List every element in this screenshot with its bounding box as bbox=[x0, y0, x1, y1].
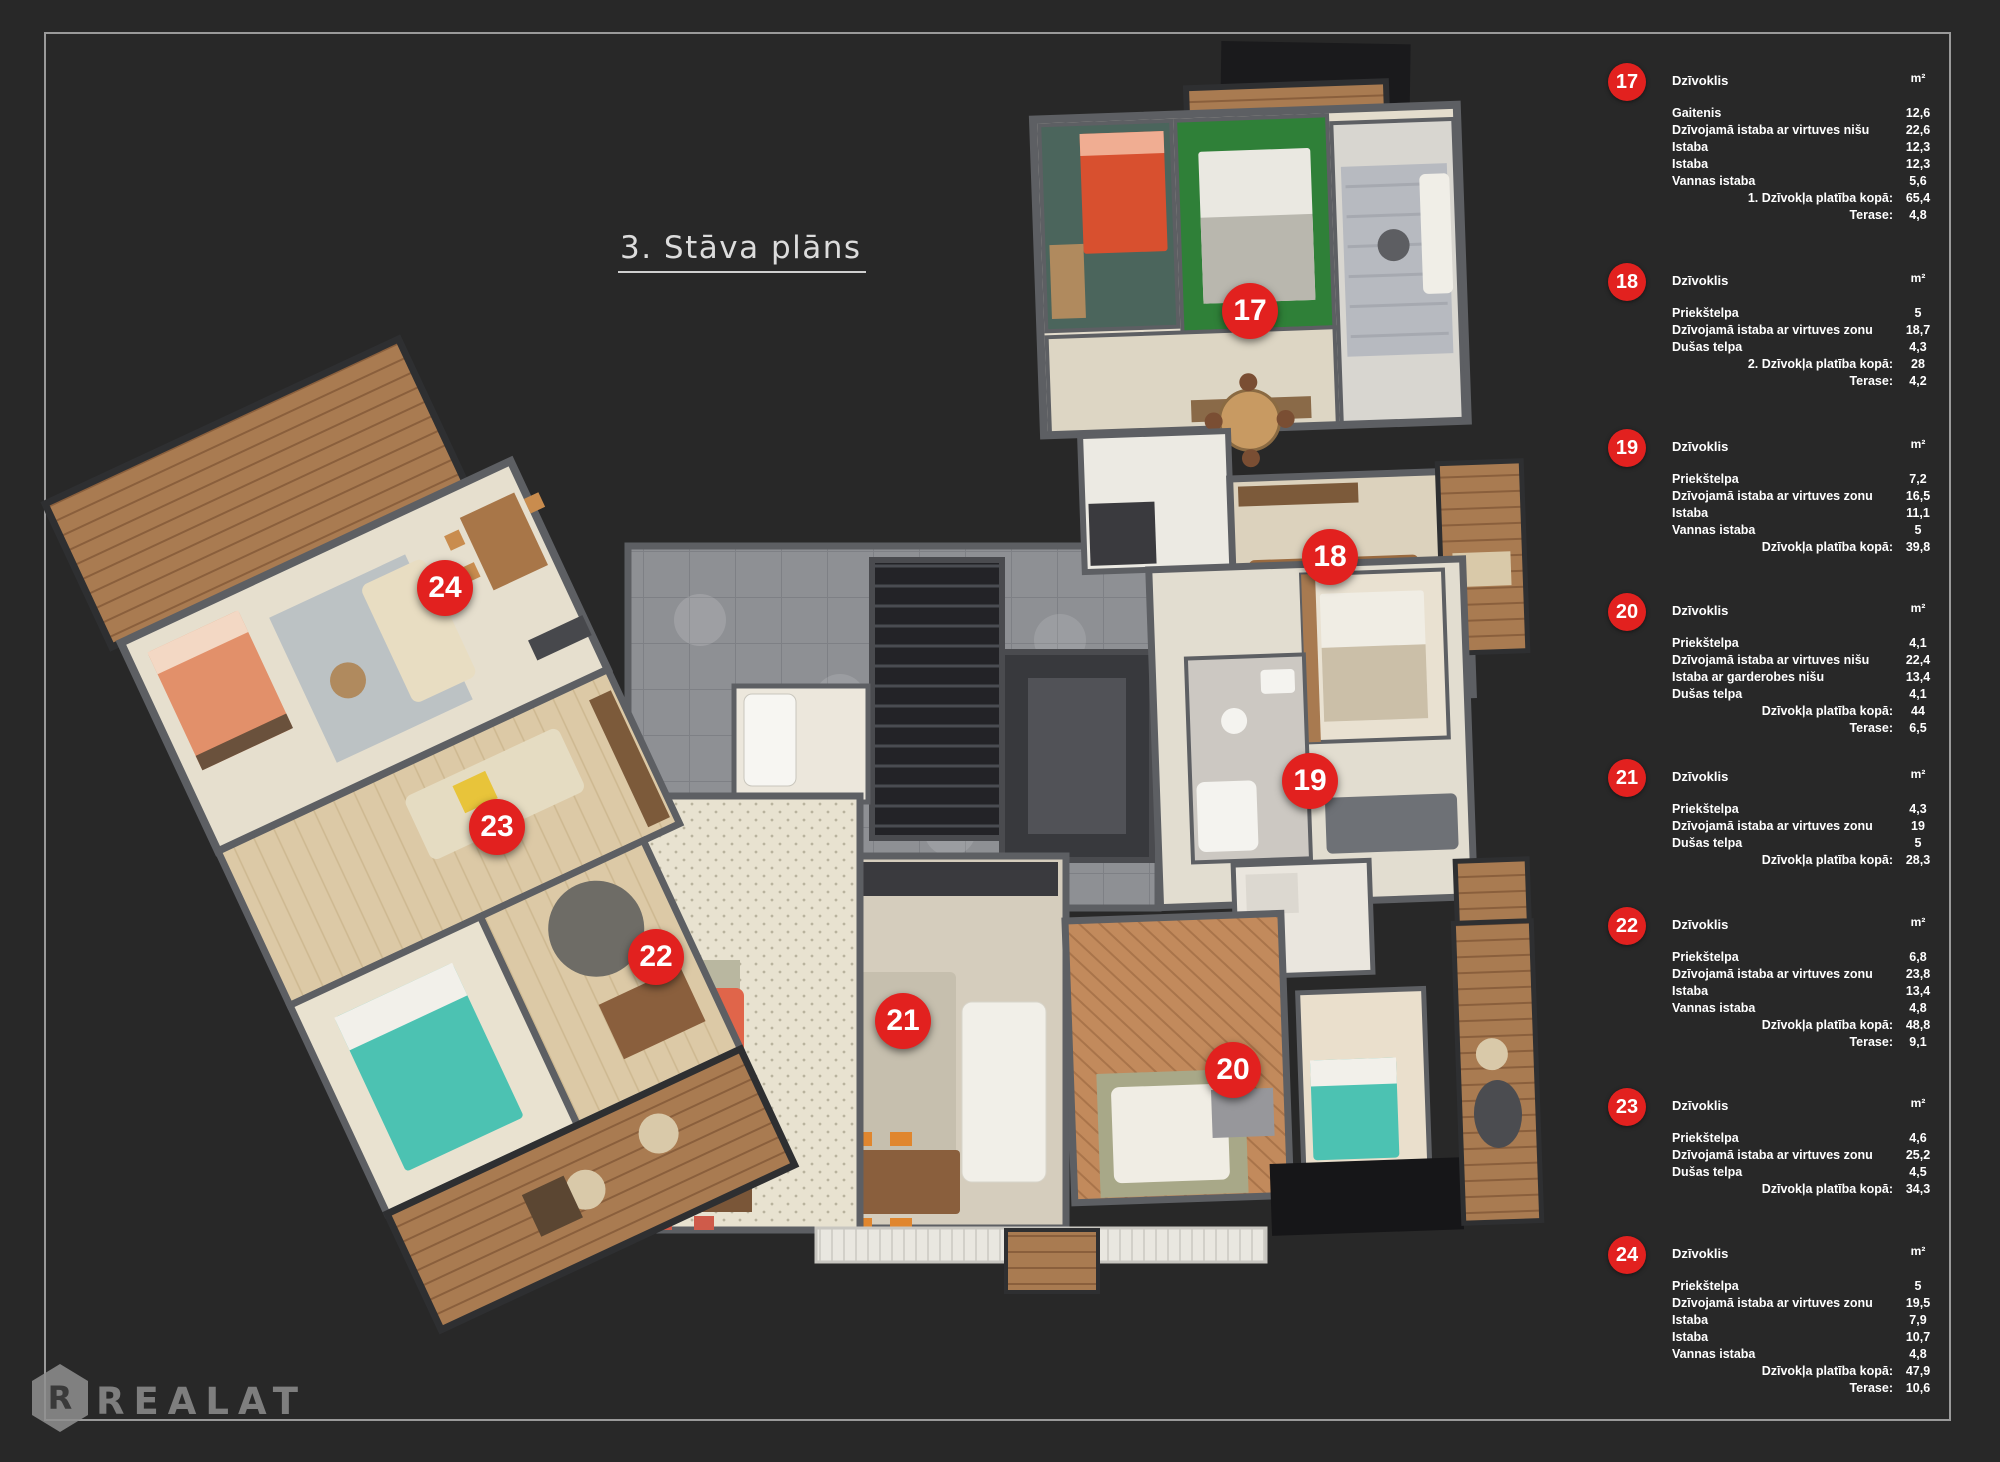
legend-total-row: Terase:4,2 bbox=[1672, 373, 1941, 390]
legend-header-label: Dzīvoklis bbox=[1672, 603, 1728, 618]
legend-header: 23Dzīvoklism² bbox=[1608, 1088, 1941, 1126]
legend-room-row: Istaba7,9 bbox=[1672, 1312, 1941, 1329]
legend-apartment-17: 17Dzīvoklism²Gaitenis12,6Dzīvojamā istab… bbox=[1608, 63, 1941, 224]
apartment-marker-18: 18 bbox=[1302, 529, 1358, 585]
apartment-number-badge: 19 bbox=[1608, 429, 1646, 467]
legend-room-row: Dušas telpa4,5 bbox=[1672, 1164, 1941, 1181]
legend-header-unit: m² bbox=[1895, 71, 1941, 85]
legend-apartment-18: 18Dzīvoklism²Priekštelpa5Dzīvojamā istab… bbox=[1608, 263, 1941, 390]
legend-room-row: Priekštelpa4,1 bbox=[1672, 635, 1941, 652]
apartment-number-badge: 17 bbox=[1608, 63, 1646, 101]
legend-room-row: Istaba11,1 bbox=[1672, 505, 1941, 522]
apartment-marker-24: 24 bbox=[417, 560, 473, 616]
apartment-number-badge: 20 bbox=[1608, 593, 1646, 631]
legend-total-row: Dzīvokļa platība kopā:44 bbox=[1672, 703, 1941, 720]
legend-room-row: Dzīvojamā istaba ar virtuves zonu19 bbox=[1672, 818, 1941, 835]
legend-header-unit: m² bbox=[1895, 1096, 1941, 1110]
logo-hexagon-icon: R bbox=[30, 1362, 90, 1434]
legend-header-label: Dzīvoklis bbox=[1672, 1246, 1728, 1261]
legend-total-row: Dzīvokļa platība kopā:28,3 bbox=[1672, 852, 1941, 869]
terrace-20 bbox=[1453, 921, 1541, 1224]
legend-room-row: Priekštelpa6,8 bbox=[1672, 949, 1941, 966]
legend-header: 20Dzīvoklism² bbox=[1608, 593, 1941, 631]
legend-room-row: Dzīvojamā istaba ar virtuves zonu25,2 bbox=[1672, 1147, 1941, 1164]
legend-room-row: Vannas istaba4,8 bbox=[1672, 1346, 1941, 1363]
legend-total-row: Terase:6,5 bbox=[1672, 720, 1941, 737]
apartment-marker-21: 21 bbox=[875, 993, 931, 1049]
legend-room-row: Vannas istaba5,6 bbox=[1672, 173, 1941, 190]
staircase bbox=[872, 560, 1002, 838]
legend-total-row: Terase:9,1 bbox=[1672, 1034, 1941, 1051]
legend-header-label: Dzīvoklis bbox=[1672, 769, 1728, 784]
apartment-marker-17: 17 bbox=[1222, 283, 1278, 339]
legend-header: 18Dzīvoklism² bbox=[1608, 263, 1941, 301]
legend-room-row: Dzīvojamā istaba ar virtuves zonu23,8 bbox=[1672, 966, 1941, 983]
legend-total-row: Dzīvokļa platība kopā:48,8 bbox=[1672, 1017, 1941, 1034]
apartment-number-badge: 21 bbox=[1608, 759, 1646, 797]
legend-apartment-21: 21Dzīvoklism²Priekštelpa4,3Dzīvojamā ist… bbox=[1608, 759, 1941, 869]
legend-room-row: Istaba12,3 bbox=[1672, 156, 1941, 173]
legend-total-row: 1. Dzīvokļa platība kopā:65,4 bbox=[1672, 190, 1941, 207]
legend-room-row: Gaitenis12,6 bbox=[1672, 105, 1941, 122]
legend-total-row: Dzīvokļa platība kopā:39,8 bbox=[1672, 539, 1941, 556]
apartment-marker-19: 19 bbox=[1282, 753, 1338, 809]
apartment-marker-20: 20 bbox=[1205, 1042, 1261, 1098]
legend-header: 24Dzīvoklism² bbox=[1608, 1236, 1941, 1274]
legend-room-row: Vannas istaba5 bbox=[1672, 522, 1941, 539]
apartment-legend: 17Dzīvoklism²Gaitenis12,6Dzīvojamā istab… bbox=[1608, 0, 1941, 1462]
legend-header-label: Dzīvoklis bbox=[1672, 73, 1728, 88]
legend-room-row: Istaba12,3 bbox=[1672, 139, 1941, 156]
legend-total-row: Dzīvokļa platība kopā:34,3 bbox=[1672, 1181, 1941, 1198]
apartment-number-badge: 24 bbox=[1608, 1236, 1646, 1274]
legend-header: 21Dzīvoklism² bbox=[1608, 759, 1941, 797]
legend-room-row: Istaba ar garderobes nišu13,4 bbox=[1672, 669, 1941, 686]
legend-room-row: Dzīvojamā istaba ar virtuves zonu16,5 bbox=[1672, 488, 1941, 505]
legend-header-unit: m² bbox=[1895, 437, 1941, 451]
legend-total-row: Terase:10,6 bbox=[1672, 1380, 1941, 1397]
legend-header-unit: m² bbox=[1895, 601, 1941, 615]
legend-header: 19Dzīvoklism² bbox=[1608, 429, 1941, 467]
legend-total-row: 2. Dzīvokļa platība kopā:28 bbox=[1672, 356, 1941, 373]
legend-room-row: Priekštelpa4,6 bbox=[1672, 1130, 1941, 1147]
legend-header-unit: m² bbox=[1895, 1244, 1941, 1258]
legend-room-row: Priekštelpa4,3 bbox=[1672, 801, 1941, 818]
legend-room-row: Istaba10,7 bbox=[1672, 1329, 1941, 1346]
legend-room-row: Vannas istaba4,8 bbox=[1672, 1000, 1941, 1017]
legend-apartment-20: 20Dzīvoklism²Priekštelpa4,1Dzīvojamā ist… bbox=[1608, 593, 1941, 737]
legend-total-row: Terase:4,8 bbox=[1672, 207, 1941, 224]
legend-apartment-24: 24Dzīvoklism²Priekštelpa5Dzīvojamā istab… bbox=[1608, 1236, 1941, 1397]
bottom-wood-terrace bbox=[1006, 1230, 1098, 1292]
apartment-number-badge: 23 bbox=[1608, 1088, 1646, 1126]
legend-apartment-23: 23Dzīvoklism²Priekštelpa4,6Dzīvojamā ist… bbox=[1608, 1088, 1941, 1198]
legend-header-label: Dzīvoklis bbox=[1672, 273, 1728, 288]
legend-apartment-22: 22Dzīvoklism²Priekštelpa6,8Dzīvojamā ist… bbox=[1608, 907, 1941, 1051]
legend-header-unit: m² bbox=[1895, 767, 1941, 781]
page: 1718192021222324 3. Stāva plāns 17Dzīvok… bbox=[0, 0, 2000, 1462]
legend-header-label: Dzīvoklis bbox=[1672, 917, 1728, 932]
realat-logo: R REALAT bbox=[30, 1362, 310, 1438]
legend-room-row: Dušas telpa4,3 bbox=[1672, 339, 1941, 356]
legend-room-row: Dzīvojamā istaba ar virtuves zonu18,7 bbox=[1672, 322, 1941, 339]
logo-text: REALAT bbox=[96, 1380, 307, 1423]
legend-room-row: Istaba13,4 bbox=[1672, 983, 1941, 1000]
apartment-number-badge: 18 bbox=[1608, 263, 1646, 301]
legend-header-label: Dzīvoklis bbox=[1672, 1098, 1728, 1113]
floor-title: 3. Stāva plāns bbox=[618, 230, 866, 273]
legend-header: 22Dzīvoklism² bbox=[1608, 907, 1941, 945]
legend-room-row: Priekštelpa7,2 bbox=[1672, 471, 1941, 488]
legend-header-unit: m² bbox=[1895, 271, 1941, 285]
legend-room-row: Dušas telpa4,1 bbox=[1672, 686, 1941, 703]
legend-total-row: Dzīvokļa platība kopā:47,9 bbox=[1672, 1363, 1941, 1380]
legend-room-row: Dzīvojamā istaba ar virtuves nišu22,4 bbox=[1672, 652, 1941, 669]
legend-header-unit: m² bbox=[1895, 915, 1941, 929]
apartment-number-badge: 22 bbox=[1608, 907, 1646, 945]
legend-room-row: Dzīvojamā istaba ar virtuves nišu22,6 bbox=[1672, 122, 1941, 139]
legend-room-row: Dzīvojamā istaba ar virtuves zonu19,5 bbox=[1672, 1295, 1941, 1312]
apartment-marker-22: 22 bbox=[628, 929, 684, 985]
legend-room-row: Priekštelpa5 bbox=[1672, 1278, 1941, 1295]
legend-header: 17Dzīvoklism² bbox=[1608, 63, 1941, 101]
dark-floor bbox=[1270, 1157, 1464, 1236]
legend-room-row: Dušas telpa5 bbox=[1672, 835, 1941, 852]
legend-header-label: Dzīvoklis bbox=[1672, 439, 1728, 454]
legend-apartment-19: 19Dzīvoklism²Priekštelpa7,2Dzīvojamā ist… bbox=[1608, 429, 1941, 556]
legend-room-row: Priekštelpa5 bbox=[1672, 305, 1941, 322]
apartment-marker-23: 23 bbox=[469, 799, 525, 855]
svg-text:R: R bbox=[48, 1379, 73, 1417]
